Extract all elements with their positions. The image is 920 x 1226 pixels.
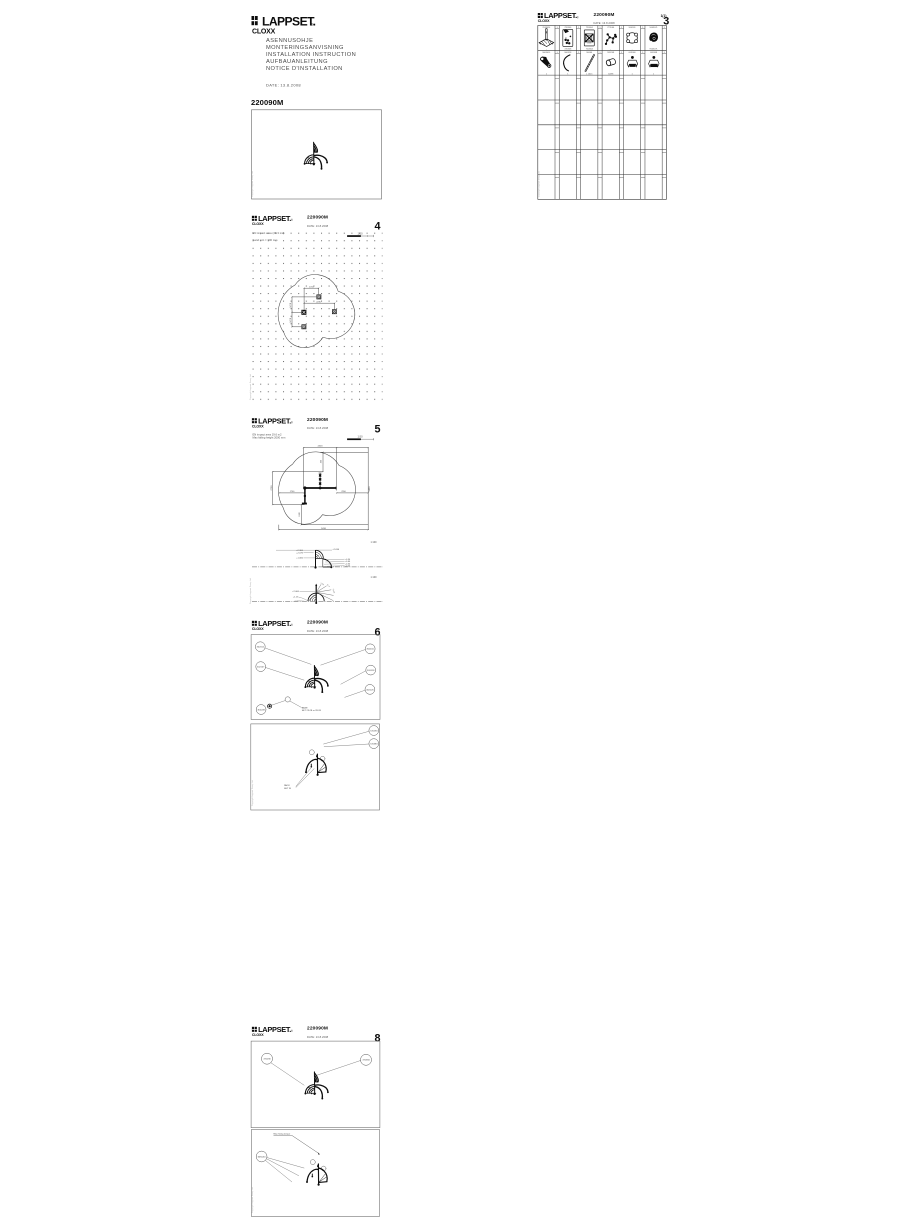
svg-text:2700: 2700 xyxy=(271,485,273,491)
svg-text:720306: 720306 xyxy=(564,27,572,29)
svg-text:220090M: 220090M xyxy=(307,620,328,626)
svg-text:720290: 720290 xyxy=(263,1059,271,1061)
svg-text:720384: 720384 xyxy=(362,1060,370,1062)
svg-text:302249: 302249 xyxy=(257,709,265,711)
svg-text:6: 6 xyxy=(375,627,381,639)
svg-text:M20x60: M20x60 xyxy=(258,1156,267,1158)
svg-text:Max fixing torque: Max fixing torque xyxy=(274,1133,291,1136)
svg-text:®: ® xyxy=(291,1029,293,1033)
svg-text:302126: 302126 xyxy=(366,689,374,691)
svg-text:1:100: 1:100 xyxy=(371,541,378,544)
svg-text:Copyright Lappset Group Ltd: Copyright Lappset Group Ltd xyxy=(249,374,252,400)
svg-text:1(1): 1(1) xyxy=(661,14,667,18)
svg-text:2400: 2400 xyxy=(318,446,324,448)
svg-text:720304: 720304 xyxy=(586,49,594,51)
svg-text:SET W: SET W xyxy=(284,788,292,790)
svg-text:003168: 003168 xyxy=(650,52,658,54)
svg-text:720306: 720306 xyxy=(564,49,572,51)
svg-text:CLOXX: CLOXX xyxy=(252,222,264,226)
svg-text:302418: 302418 xyxy=(367,670,375,672)
svg-text:900342L: 900342L xyxy=(542,52,551,54)
svg-text:8: 8 xyxy=(375,1033,381,1045)
svg-text:+0.00: +0.00 xyxy=(345,565,351,567)
svg-text:L 1615: L 1615 xyxy=(586,73,593,75)
svg-text:900307L: 900307L xyxy=(650,49,659,51)
svg-text:®: ® xyxy=(577,15,579,19)
svg-text:CLOXX: CLOXX xyxy=(252,1033,264,1037)
svg-text:DATE: 13.8.2008: DATE: 13.8.2008 xyxy=(307,426,329,430)
svg-text:+2.050: +2.050 xyxy=(332,549,340,551)
svg-text:720304: 720304 xyxy=(586,27,594,29)
svg-text:NOTICE D'INSTALLATION: NOTICE D'INSTALLATION xyxy=(266,66,343,72)
svg-text:302410: 302410 xyxy=(367,649,375,651)
svg-text:Copyright Lappset Group Ltd: Copyright Lappset Group Ltd xyxy=(251,1187,254,1213)
svg-text:CLOXX: CLOXX xyxy=(252,28,276,35)
svg-text:220090M: 220090M xyxy=(307,1026,328,1032)
svg-text:50/98: 50/98 xyxy=(608,73,614,75)
svg-text:DATE: 13.8.2008: DATE: 13.8.2008 xyxy=(307,629,329,633)
svg-text:720383: 720383 xyxy=(370,744,378,746)
svg-text:721566: 721566 xyxy=(607,27,615,29)
svg-text:+2.000: +2.000 xyxy=(292,591,300,593)
svg-text:Copyright Lappset Group Ltd: Copyright Lappset Group Ltd xyxy=(538,171,541,197)
svg-text:003066: 003066 xyxy=(629,52,637,54)
svg-text:5430: 5430 xyxy=(321,528,327,530)
svg-text:920208: 920208 xyxy=(607,52,615,54)
svg-text:®: ® xyxy=(291,623,293,627)
svg-text:SET 23-28 or 28-33: SET 23-28 or 28-33 xyxy=(302,709,322,712)
svg-text:5: 5 xyxy=(375,424,381,436)
svg-text:AUFBAUANLEITUNG: AUFBAUANLEITUNG xyxy=(266,59,328,65)
svg-text:DATE: 13.8.2008: DATE: 13.8.2008 xyxy=(266,83,301,88)
svg-text:220090M: 220090M xyxy=(307,215,328,221)
svg-text:+2.075: +2.075 xyxy=(296,552,304,554)
svg-text:PACK: PACK xyxy=(284,784,290,787)
svg-text:BASE: BASE xyxy=(302,707,308,710)
svg-text:900301: 900301 xyxy=(629,27,637,29)
svg-text:L356: L356 xyxy=(587,43,591,45)
svg-text:+1.15: +1.15 xyxy=(293,597,299,599)
svg-text:302107: 302107 xyxy=(257,667,265,669)
svg-text:720290: 720290 xyxy=(370,730,378,732)
svg-text:Copyright Lappset Group Ltd: Copyright Lappset Group Ltd xyxy=(249,578,252,604)
svg-text:Copyright Lappset Group Ltd: Copyright Lappset Group Ltd xyxy=(251,780,254,806)
svg-text:CLOXX: CLOXX xyxy=(252,627,264,631)
svg-text:900318: 900318 xyxy=(564,52,572,54)
svg-text:+1.000: +1.000 xyxy=(296,558,304,560)
svg-text:Copyright Lappset Group Ltd: Copyright Lappset Group Ltd xyxy=(251,171,254,197)
svg-text:DATE: 13.8.2008: DATE: 13.8.2008 xyxy=(594,21,616,25)
svg-text:900307L: 900307L xyxy=(650,27,659,29)
svg-text:®: ® xyxy=(311,22,314,27)
svg-text:Max falling height 2000 mm: Max falling height 2000 mm xyxy=(253,436,287,440)
svg-text:1:100: 1:100 xyxy=(371,576,378,579)
svg-text:DATE: 13.8.2008: DATE: 13.8.2008 xyxy=(307,224,329,228)
svg-text:CLOXX: CLOXX xyxy=(538,19,550,23)
svg-text:302312: 302312 xyxy=(257,647,265,649)
svg-text:220090M: 220090M xyxy=(307,417,328,423)
svg-text:90066: 90066 xyxy=(586,52,593,54)
svg-text:ASENNUSOHJE: ASENNUSOHJE xyxy=(266,38,313,44)
svg-text:DATE: 13.8.2008: DATE: 13.8.2008 xyxy=(307,1035,329,1039)
svg-text:MONTERINGSANVISNING: MONTERINGSANVISNING xyxy=(266,45,344,51)
svg-text:®: ® xyxy=(291,218,293,222)
svg-text:1:50: 1:50 xyxy=(358,435,364,439)
svg-text:INSTALLATION INSTRUCTION: INSTALLATION INSTRUCTION xyxy=(266,52,356,58)
svg-text:220090M: 220090M xyxy=(594,12,615,18)
svg-text:®: ® xyxy=(291,421,293,425)
svg-text:220090M: 220090M xyxy=(251,98,283,107)
svg-text:CLOXX: CLOXX xyxy=(252,424,264,428)
svg-text:5400: 5400 xyxy=(369,486,371,492)
svg-text:LAPPSET.: LAPPSET. xyxy=(262,14,316,28)
